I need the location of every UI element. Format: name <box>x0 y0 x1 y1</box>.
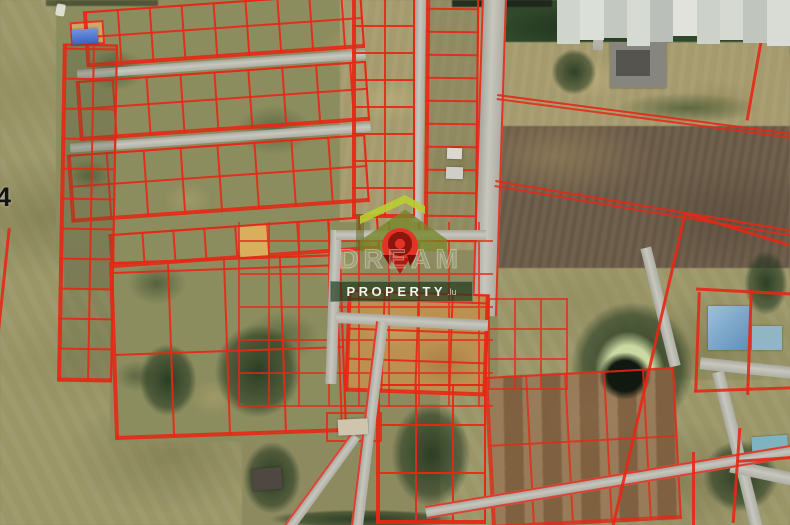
censor-block <box>673 0 696 36</box>
satellite-map-canvas: 4 DREAM PROPERTY.lu <box>0 0 790 525</box>
censor-block <box>604 0 627 38</box>
censor-block <box>697 0 720 44</box>
field-left <box>0 0 64 310</box>
watermark-bar-suffix: .lu <box>447 287 457 297</box>
parcel-grid-east-of-road <box>488 298 568 390</box>
blue-roof-house <box>708 306 750 350</box>
censor-block <box>557 0 580 44</box>
red-line-corner-2 <box>692 452 695 525</box>
censor-block <box>580 0 603 40</box>
censor-block <box>743 0 766 43</box>
censored-region <box>557 0 790 46</box>
strip-a-divider <box>384 0 386 216</box>
watermark-logo: DREAM PROPERTY.lu <box>326 192 476 310</box>
censor-block <box>720 0 743 40</box>
censor-block <box>627 0 650 46</box>
parcel-strip-a <box>352 0 415 218</box>
farmhouse-top-right <box>610 42 666 88</box>
ladder-divider-line <box>87 46 95 380</box>
white-building-2 <box>446 167 463 180</box>
watermark-bar: PROPERTY.lu <box>330 281 473 302</box>
censor-block <box>767 0 790 46</box>
watermark-bar-text: PROPERTY <box>346 284 446 299</box>
censor-block <box>650 0 673 42</box>
white-building-1 <box>447 148 462 160</box>
parcel-ladder-left <box>57 44 118 383</box>
blue-tarp-building <box>72 28 99 45</box>
watermark-outline-word: DREAM <box>326 244 476 275</box>
dark-roof-house-bottom-left <box>251 467 283 492</box>
road-number-label: 4 <box>0 182 11 213</box>
teal-roof-house <box>752 326 782 350</box>
farmhouse-roof <box>616 50 650 76</box>
pale-building-bottom-center <box>338 418 369 436</box>
